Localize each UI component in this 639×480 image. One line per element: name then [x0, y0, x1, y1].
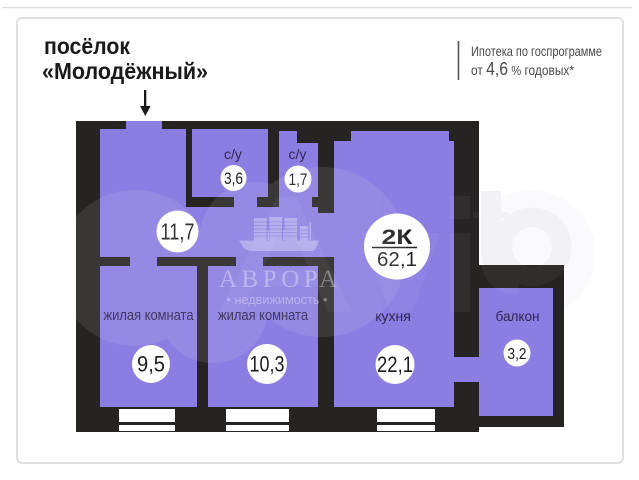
svg-text:«Молодёжный»: «Молодёжный»: [42, 58, 208, 84]
svg-text:балкон: балкон: [496, 308, 540, 324]
svg-text:10,3: 10,3: [250, 352, 285, 377]
svg-text:Ипотека по госпрограмме: Ипотека по госпрограмме: [471, 43, 602, 59]
svg-text:22,1: 22,1: [377, 352, 413, 377]
svg-text:3,2: 3,2: [508, 346, 527, 363]
svg-text:с/у: с/у: [224, 146, 242, 162]
svg-text:посёлок: посёлок: [44, 33, 130, 59]
svg-text:с/у: с/у: [289, 146, 307, 162]
svg-text:9,5: 9,5: [137, 352, 165, 377]
svg-text:• недвижимость •: • недвижимость •: [227, 292, 328, 307]
svg-text:от 4,6 % годовых*: от 4,6 % годовых*: [471, 58, 574, 79]
